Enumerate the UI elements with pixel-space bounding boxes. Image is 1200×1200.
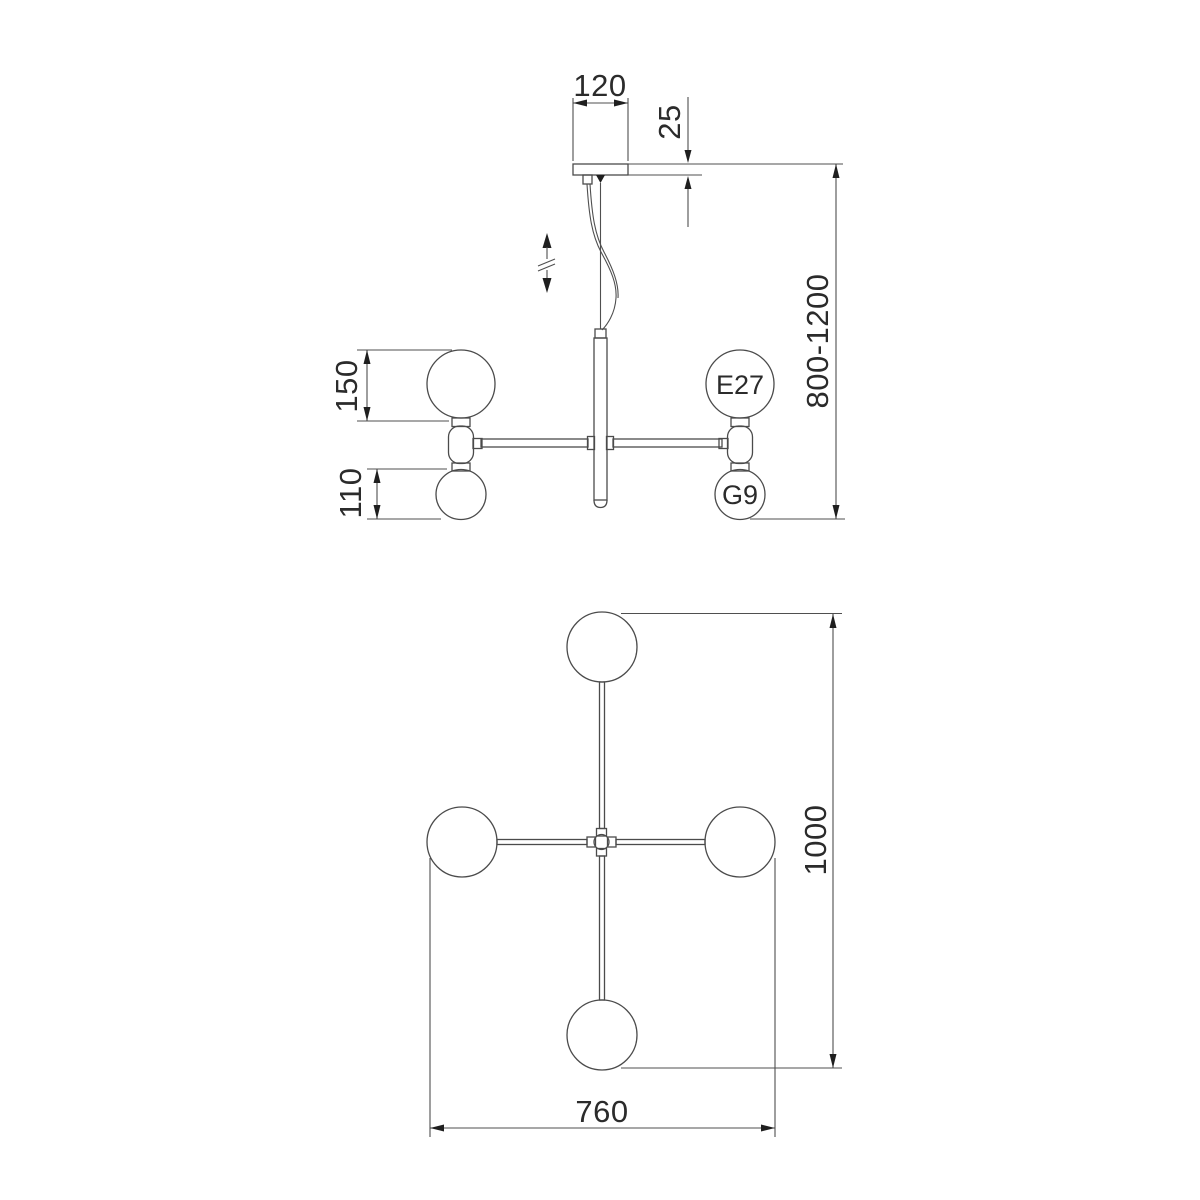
arm-left: [481, 439, 588, 447]
arrowhead-right: [761, 1125, 775, 1132]
left-lamp-assembly: [427, 350, 495, 520]
left-upper-globe: [427, 350, 495, 418]
dim-overall-depth: 1000: [621, 614, 842, 1069]
dim-label-1000: 1000: [798, 805, 833, 876]
rod-top-grip: [595, 329, 606, 338]
left-hub-body: [449, 426, 474, 464]
drawing-canvas: E27 G9 120 25 800-1200: [0, 0, 1200, 1200]
top-view-arms: [497, 682, 705, 1000]
left-upper-collar: [452, 418, 470, 427]
ceiling-canopy: [573, 164, 628, 175]
arrowhead-down: [374, 505, 381, 519]
plan-arm-up: [600, 682, 605, 829]
dim-small-shade: 110: [333, 468, 447, 519]
arrowhead-down: [364, 407, 371, 421]
dim-overall-width: 760: [430, 858, 775, 1137]
arrowhead-down: [833, 505, 840, 519]
hub-center: [594, 835, 609, 850]
arrowhead-left: [430, 1125, 444, 1132]
right-lamp-assembly: E27 G9: [706, 350, 774, 520]
dim-label-120: 120: [573, 68, 626, 103]
arrowhead-up: [364, 350, 371, 364]
plan-globe-bottom: [567, 1000, 637, 1070]
arrowhead-down: [685, 150, 692, 163]
right-upper-collar: [731, 418, 749, 427]
rod-body: [594, 338, 607, 500]
height-adjust-icon: [538, 233, 555, 293]
plan-arm-left: [497, 840, 587, 845]
arrowhead-up: [833, 164, 840, 178]
socket-label-g9: G9: [722, 480, 758, 510]
rod-bottom-cap: [594, 500, 607, 508]
dim-label-110: 110: [333, 468, 368, 519]
dim-large-shade: 150: [329, 350, 452, 421]
dim-label-25: 25: [652, 104, 687, 139]
dim-canopy-thickness: 25: [628, 97, 843, 227]
down-arrowhead: [543, 278, 552, 293]
suspension: [583, 175, 618, 330]
plan-arm-down: [600, 856, 605, 1000]
socket-label-e27: E27: [716, 370, 764, 400]
arm-right: [613, 439, 722, 447]
cable-attachment: [596, 175, 605, 183]
up-arrowhead: [543, 233, 552, 248]
side-view: E27 G9 120 25 800-1200: [329, 68, 845, 520]
cord-grip-top: [583, 175, 592, 184]
arrowhead-down: [830, 1054, 837, 1068]
top-view: 1000 760: [427, 612, 842, 1137]
lamp-dimension-drawing: E27 G9 120 25 800-1200: [0, 0, 1200, 1200]
dim-suspension-height: 800-1200: [750, 164, 845, 519]
center-rod: [594, 329, 607, 508]
top-view-hub: [587, 829, 616, 857]
arrowhead-up: [685, 176, 692, 189]
plan-arm-right: [616, 840, 705, 845]
left-lower-globe: [436, 470, 486, 520]
arrowhead-up: [830, 614, 837, 628]
cross-arm: [481, 437, 722, 450]
dim-label-760: 760: [575, 1094, 628, 1129]
dim-label-150: 150: [329, 359, 364, 412]
top-view-globes: [427, 612, 775, 1070]
plan-globe-right: [705, 807, 775, 877]
plan-globe-top: [567, 612, 637, 682]
arrowhead-up: [374, 469, 381, 483]
plan-globe-left: [427, 807, 497, 877]
right-hub-body: [728, 426, 753, 464]
dim-canopy-width: 120: [573, 68, 628, 161]
dim-label-800-1200: 800-1200: [800, 273, 835, 408]
